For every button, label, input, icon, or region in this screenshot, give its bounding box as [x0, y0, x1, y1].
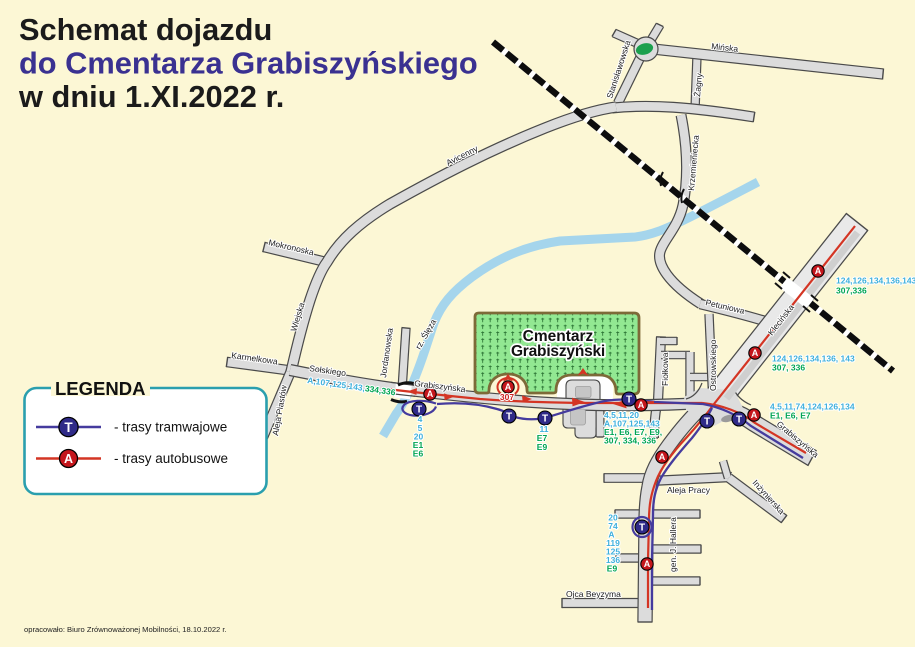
- svg-text:- trasy tramwajowe: - trasy tramwajowe: [114, 420, 227, 435]
- svg-text:Aleja Pracy: Aleja Pracy: [667, 485, 711, 495]
- svg-text:E9: E9: [607, 564, 618, 574]
- svg-text:opracowało: Biuro Zrównoważone: opracowało: Biuro Zrównoważonej Mobilnoś…: [24, 625, 227, 634]
- svg-text:gen. J. Hallera: gen. J. Hallera: [668, 517, 678, 572]
- svg-text:Grabiszyński: Grabiszyński: [511, 343, 605, 360]
- svg-text:E1, E6, E7: E1, E6, E7: [770, 411, 811, 421]
- svg-text:LEGENDA: LEGENDA: [55, 378, 145, 399]
- svg-text:Żagny: Żagny: [692, 72, 704, 97]
- svg-text:124,126,134,136,143: 124,126,134,136,143: [836, 276, 915, 286]
- svg-text:Schemat dojazdu: Schemat dojazdu: [19, 12, 272, 47]
- svg-text:Ojca Beyzyma: Ojca Beyzyma: [566, 589, 621, 599]
- svg-text:T: T: [64, 420, 73, 435]
- svg-text:A: A: [427, 389, 434, 399]
- svg-text:A: A: [64, 452, 73, 466]
- svg-text:E6: E6: [413, 449, 424, 459]
- svg-text:- trasy autobusowe: - trasy autobusowe: [114, 451, 228, 466]
- svg-text:E9: E9: [537, 442, 548, 452]
- svg-text:307,336: 307,336: [836, 286, 867, 296]
- svg-text:307, 336: 307, 336: [772, 363, 805, 373]
- svg-text:Ostrowskiego: Ostrowskiego: [708, 339, 718, 391]
- svg-text:do Cmentarza Grabiszyńskiego: do Cmentarza Grabiszyńskiego: [19, 46, 478, 81]
- svg-text:307: 307: [500, 392, 514, 402]
- svg-text:w dniu 1.XI.2022 r.: w dniu 1.XI.2022 r.: [18, 79, 284, 114]
- svg-text:Fiołkowa: Fiołkowa: [660, 352, 670, 386]
- svg-text:307, 334, 336: 307, 334, 336: [604, 436, 656, 446]
